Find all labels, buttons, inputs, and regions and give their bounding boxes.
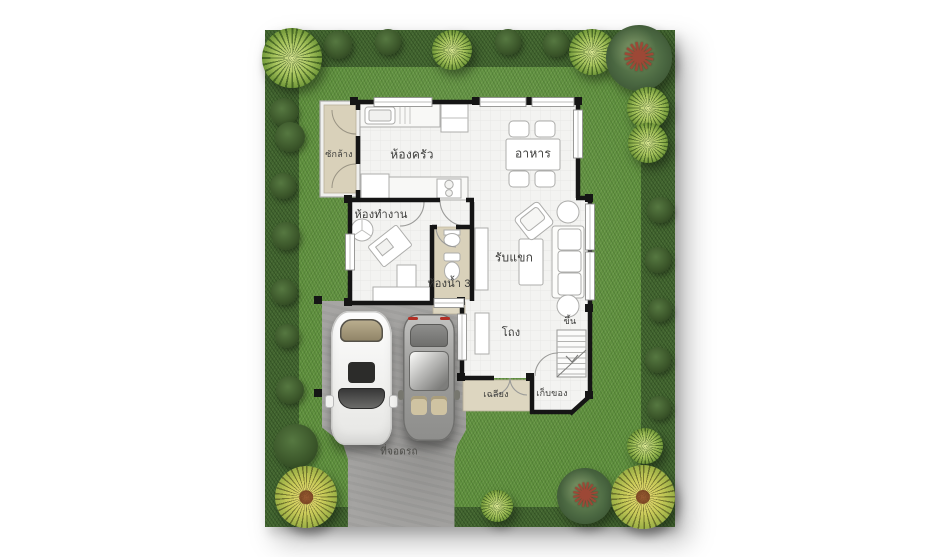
console-table (475, 228, 488, 290)
carport-post (314, 296, 322, 304)
car-rear-window (340, 319, 383, 342)
car-mirror (398, 390, 404, 400)
sofa-cushion (558, 251, 581, 272)
car-windshield (338, 388, 385, 409)
dining-chair (509, 121, 529, 137)
work-counter (373, 287, 432, 302)
car-seat (431, 396, 447, 415)
staircase (557, 330, 586, 377)
car-mirror (325, 395, 334, 408)
burner (445, 180, 453, 188)
car-roof-glass (409, 351, 449, 391)
car-rear-window (410, 324, 448, 347)
room-label-bathroom: ห้องน้ำ 3 (427, 274, 470, 292)
car-taillight (440, 317, 450, 320)
car-seat (411, 396, 427, 415)
dining-chair (535, 171, 555, 187)
hall-cabinet (475, 313, 489, 354)
room-label-living: รับแขก (495, 249, 533, 268)
stairs-up-label: ขึ้น (564, 314, 577, 328)
car-mirror (454, 390, 460, 400)
site-plan: ✺ ✺ (0, 0, 940, 557)
dining-chair (509, 171, 529, 187)
toilet-tank (444, 253, 460, 261)
car-taillight (408, 317, 418, 320)
dining-chair (535, 121, 555, 137)
carport-post (314, 389, 322, 397)
car-mirror (389, 395, 398, 408)
room-label-laundry: ซักล้าง (325, 147, 353, 161)
car-silver (403, 314, 455, 441)
car-sunroof (348, 362, 375, 383)
side-table (557, 201, 579, 223)
drawer-unit (397, 265, 416, 290)
room-label-workroom: ห้องทำงาน (354, 205, 407, 223)
kitchen-cabinet (361, 174, 389, 200)
room-label-hall: โถง (502, 323, 521, 341)
sofa-cushion (558, 229, 581, 250)
room-label-carport: ที่จอดรถ (380, 445, 418, 460)
room-label-dining: อาหาร (515, 145, 551, 164)
sofa-cushion (558, 273, 581, 295)
room-label-kitchen: ห้องครัว (390, 146, 433, 165)
burner (446, 190, 453, 197)
room-label-porch: เฉลียง (483, 387, 508, 401)
car-white (331, 311, 392, 445)
kitchen-sink-basin (369, 110, 391, 121)
room-label-storage: เก็บของ (536, 386, 567, 400)
